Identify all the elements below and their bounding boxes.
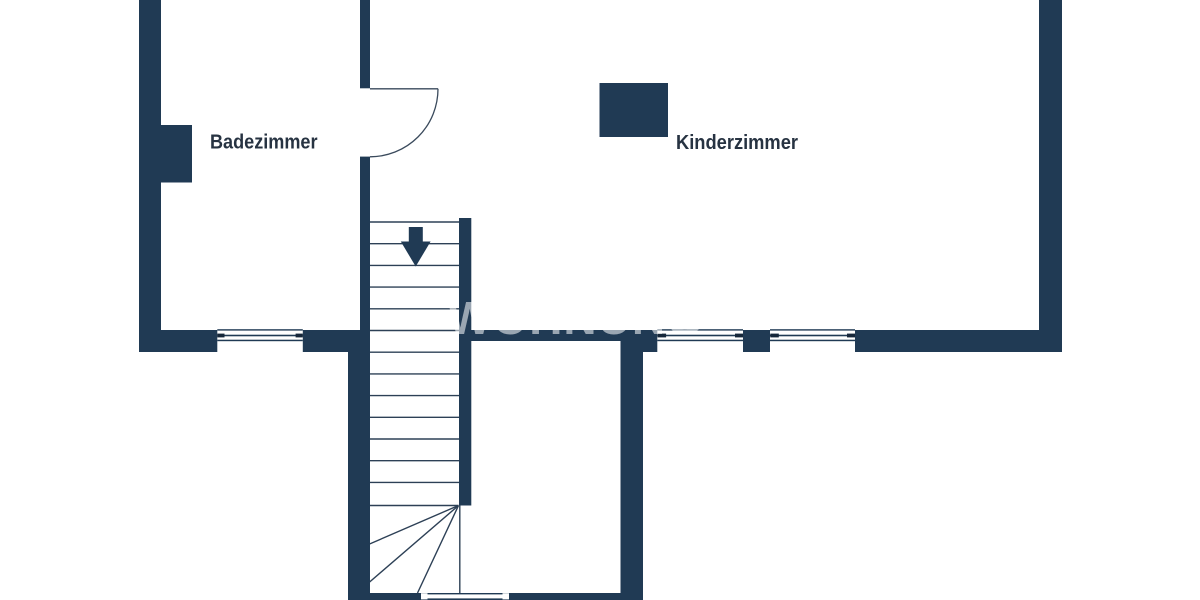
svg-text:WOHNUNG: WOHNUNG: [448, 292, 703, 344]
svg-text:Badezimmer: Badezimmer: [210, 131, 318, 153]
svg-text:Kinderzimmer: Kinderzimmer: [676, 132, 798, 154]
